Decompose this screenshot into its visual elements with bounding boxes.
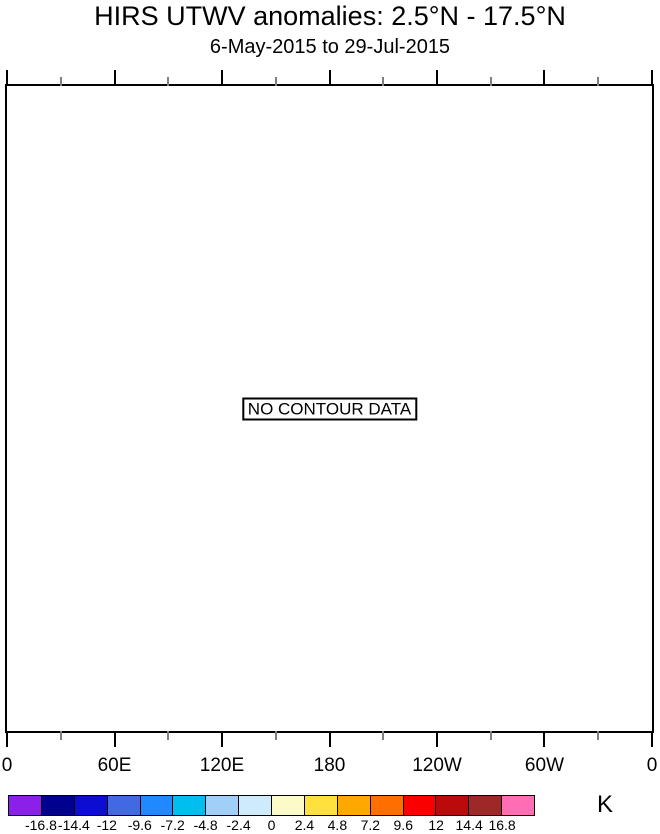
x-axis-minor-tick — [597, 731, 599, 740]
x-axis-major-tick — [6, 70, 8, 86]
colorbar-tick-label: 2.4 — [295, 818, 314, 833]
colorbar-tick-label: -9.6 — [128, 818, 152, 833]
x-axis-minor-tick — [167, 77, 169, 86]
x-axis-tick-label: 0 — [2, 756, 13, 776]
colorbar-tick-label: -2.4 — [227, 818, 251, 833]
colorbar-segment — [107, 795, 141, 816]
colorbar-segment — [8, 795, 42, 816]
colorbar-units-label: K — [585, 792, 625, 818]
colorbar-segment — [41, 795, 75, 816]
no-data-label: NO CONTOUR DATA — [242, 397, 417, 420]
colorbar-tick-label: -12 — [97, 818, 117, 833]
x-axis-minor-tick — [60, 731, 62, 740]
x-axis-major-tick — [221, 731, 223, 747]
colorbar-tick-label: -4.8 — [194, 818, 218, 833]
x-axis-major-tick — [436, 731, 438, 747]
x-axis-major-tick — [436, 70, 438, 86]
x-axis-minor-tick — [60, 77, 62, 86]
colorbar-tick-label: -7.2 — [161, 818, 185, 833]
colorbar-segment — [337, 795, 371, 816]
x-axis-tick-label: 120W — [412, 756, 462, 776]
x-axis-minor-tick — [167, 731, 169, 740]
chart-subtitle: 6-May-2015 to 29-Jul-2015 — [0, 37, 660, 58]
colorbar-tick-label: 12 — [428, 818, 444, 833]
colorbar-segment — [403, 795, 437, 816]
x-axis-major-tick — [329, 70, 331, 86]
colorbar-segment — [304, 795, 338, 816]
x-axis-tick-label: 60E — [98, 756, 132, 776]
x-axis-tick-label: 120E — [200, 756, 244, 776]
colorbar-tick-label: 9.6 — [394, 818, 413, 833]
colorbar: -16.8-14.4-12-9.6-7.2-4.8-2.402.44.87.29… — [8, 795, 535, 816]
x-axis-minor-tick — [275, 731, 277, 740]
colorbar-tick-label: -16.8 — [25, 818, 57, 833]
x-axis-minor-tick — [382, 77, 384, 86]
x-axis-minor-tick — [597, 77, 599, 86]
colorbar-tick-label: 4.8 — [328, 818, 347, 833]
x-axis-minor-tick — [490, 77, 492, 86]
plot-area: NO CONTOUR DATA 060E120E180120W60W0 — [5, 84, 654, 733]
colorbar-segment — [238, 795, 272, 816]
x-axis-tick-label: 60W — [525, 756, 564, 776]
x-axis-major-tick — [329, 731, 331, 747]
colorbar-tick-label: 14.4 — [456, 818, 483, 833]
x-axis-tick-label: 180 — [314, 756, 346, 776]
x-axis-major-tick — [221, 70, 223, 86]
x-axis-major-tick — [6, 731, 8, 747]
x-axis-major-tick — [114, 731, 116, 747]
x-axis-minor-tick — [275, 77, 277, 86]
colorbar-segment — [370, 795, 404, 816]
x-axis-minor-tick — [382, 731, 384, 740]
colorbar-tick-label: 16.8 — [488, 818, 515, 833]
colorbar-segment — [140, 795, 174, 816]
chart-title: HIRS UTWV anomalies: 2.5°N - 17.5°N — [0, 2, 660, 30]
x-axis-major-tick — [651, 70, 653, 86]
colorbar-segment — [501, 795, 535, 816]
colorbar-segment — [205, 795, 239, 816]
x-axis-minor-tick — [490, 731, 492, 740]
x-axis-major-tick — [543, 731, 545, 747]
colorbar-tick-label: 0 — [268, 818, 276, 833]
colorbar-segment — [468, 795, 502, 816]
colorbar-segment — [271, 795, 305, 816]
colorbar-tick-label: -14.4 — [58, 818, 90, 833]
x-axis-tick-label: 0 — [647, 756, 658, 776]
x-axis-major-tick — [114, 70, 116, 86]
colorbar-segment — [172, 795, 206, 816]
colorbar-segment — [435, 795, 469, 816]
x-axis-major-tick — [543, 70, 545, 86]
colorbar-tick-label: 7.2 — [361, 818, 380, 833]
x-axis-major-tick — [651, 731, 653, 747]
colorbar-segment — [74, 795, 108, 816]
